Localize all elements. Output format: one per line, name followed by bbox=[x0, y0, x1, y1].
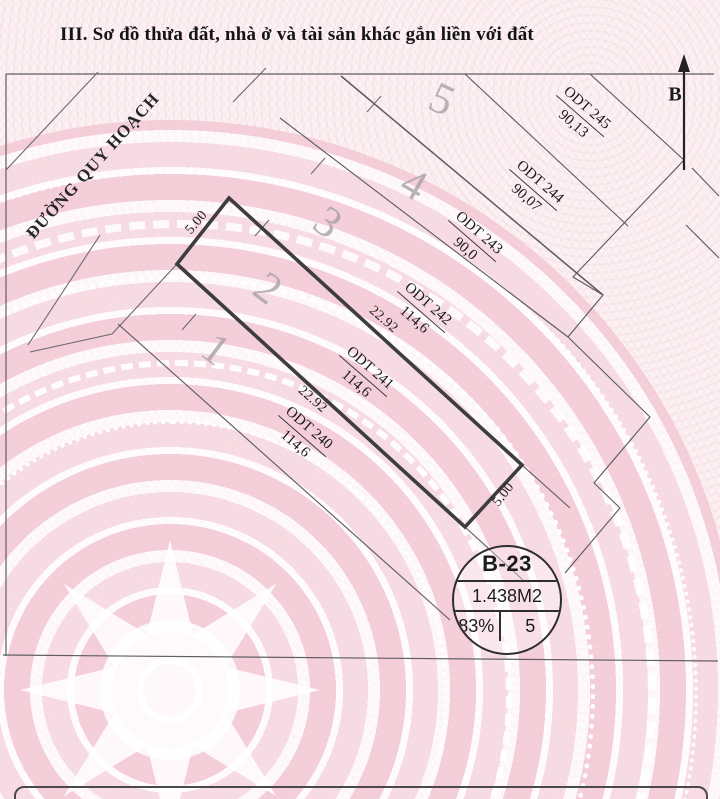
stamp-block-area: 1.438M2 bbox=[454, 582, 560, 612]
block-info-stamp: B-23 1.438M2 83% 5 bbox=[452, 545, 562, 655]
next-section-border bbox=[14, 786, 708, 799]
north-arrow-icon bbox=[678, 54, 690, 170]
rear-boundary-staircase bbox=[565, 160, 684, 573]
certificate-map-page: III. Sơ đồ thửa đất, nhà ở và tài sản kh… bbox=[0, 0, 720, 799]
north-label: B bbox=[668, 84, 681, 107]
section-title: III. Sơ đồ thửa đất, nhà ở và tài sản kh… bbox=[60, 24, 534, 46]
